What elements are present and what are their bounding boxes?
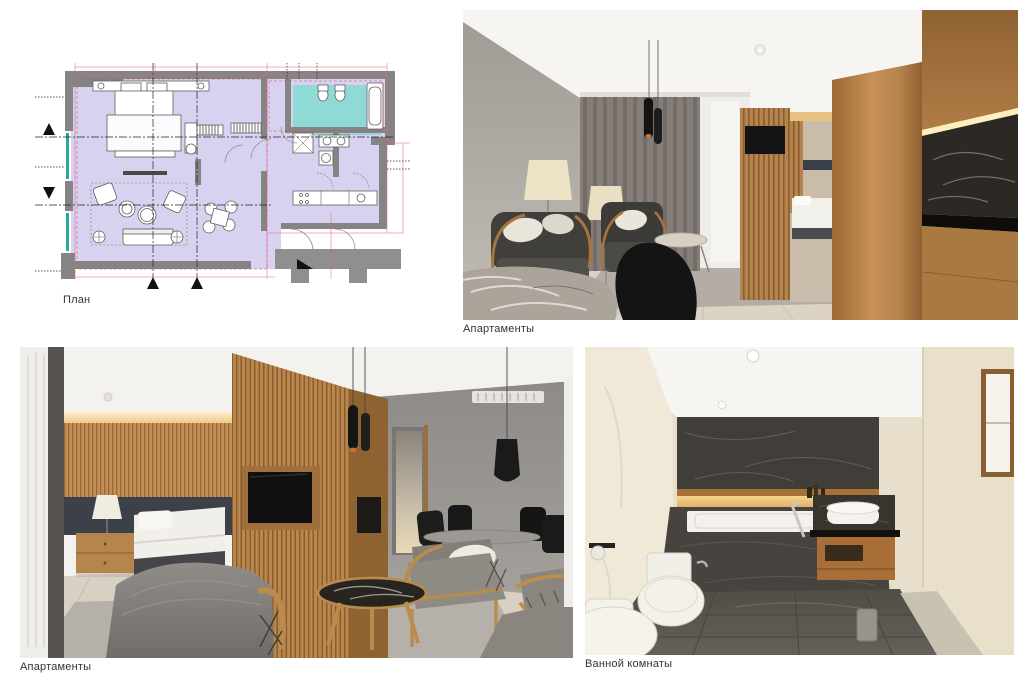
right-wall-sliver (564, 377, 573, 607)
wood-column (832, 62, 922, 320)
bathroom-figure: Ванной комнаты (585, 347, 1014, 670)
window (981, 369, 1014, 477)
kitchenette (922, 10, 1018, 320)
vanity-counter (810, 530, 900, 537)
ceiling-spotlight (755, 45, 765, 55)
apartment-bottom-caption: Апартаменты (20, 661, 573, 673)
ac-vent (472, 391, 544, 403)
bathroom-caption: Ванной комнаты (585, 658, 1014, 670)
plan-caption: План (63, 294, 410, 306)
vanity (810, 495, 900, 580)
trash-bin (857, 609, 877, 641)
tv (248, 472, 312, 523)
stone-accent-wall (677, 417, 879, 491)
nightstand (76, 533, 134, 577)
floor-plan-figure: План (35, 63, 410, 306)
apartment-top-render (463, 10, 1018, 320)
foreground-chair (106, 563, 283, 658)
apartment-bottom-render (20, 347, 573, 658)
bathroom-render (585, 347, 1014, 655)
tv-unit (242, 466, 320, 530)
plan-tv (123, 171, 167, 175)
floor-plan-drawing (35, 63, 410, 291)
bedroom-glimpse (790, 112, 832, 302)
window-frame (48, 347, 64, 658)
ceiling-spotlight (104, 393, 112, 401)
plan-wardrobe (197, 125, 223, 135)
apartment-top-figure: Апартаменты (463, 10, 1018, 335)
apartment-bottom-figure: Апартаменты (20, 347, 573, 673)
tv (745, 126, 785, 154)
cabinet-niche (357, 497, 381, 533)
apartment-top-caption: Апартаменты (463, 323, 1018, 335)
presentation-page: План (0, 0, 1034, 682)
